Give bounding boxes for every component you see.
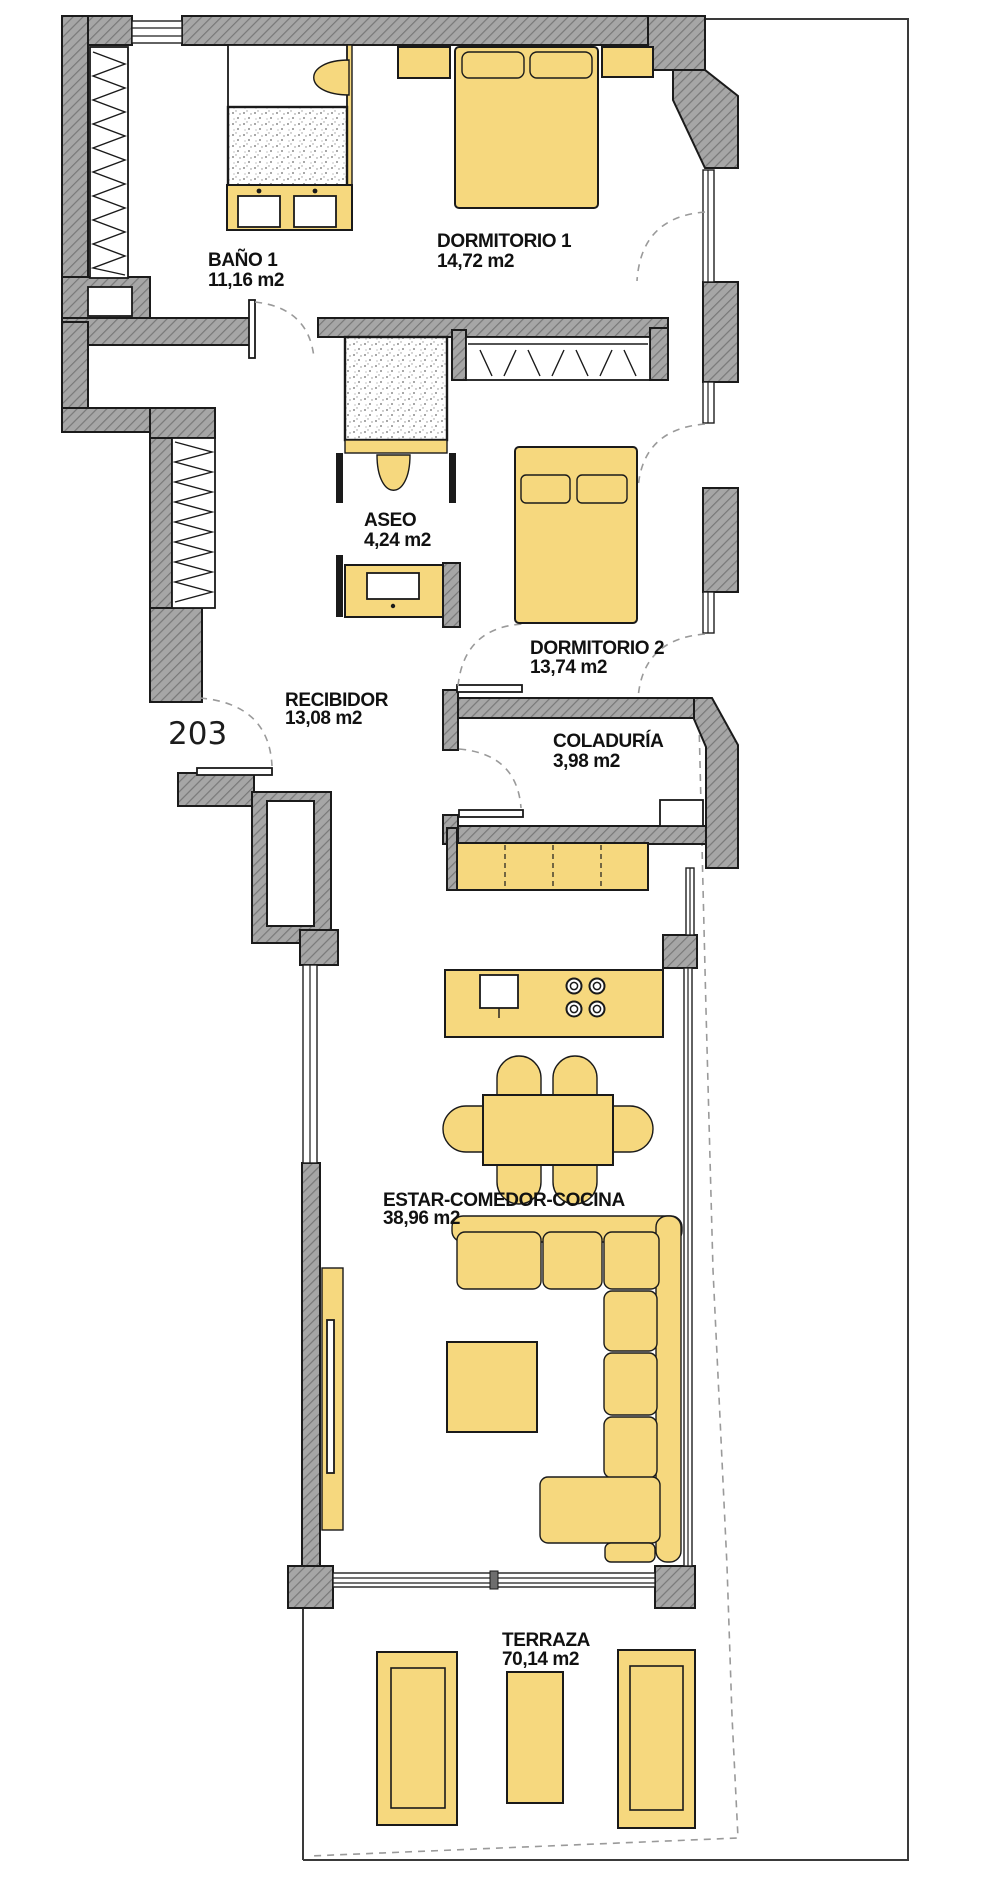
floor-plan-drawing: BAÑO 1 11,16 m2 DORMITORIO 1 14,72 m2 AS… xyxy=(0,0,1000,1894)
kitchen-island xyxy=(445,970,663,1037)
label-terraza-name: TERRAZA xyxy=(502,1630,591,1651)
wall-top-right-corner xyxy=(648,16,705,70)
wall-entry xyxy=(178,773,254,806)
label-dorm2-name: DORMITORIO 2 xyxy=(530,638,664,659)
sofa-seat-3 xyxy=(604,1291,657,1351)
label-recibidor-area: 13,08 m2 xyxy=(285,708,362,729)
chair-left xyxy=(443,1106,486,1152)
dorm2-entry-door-swing xyxy=(458,624,522,686)
wall-laundry-bottom xyxy=(452,826,706,844)
label-bano1-area: 11,16 m2 xyxy=(208,270,284,291)
label-dorm1-name: DORMITORIO 1 xyxy=(437,231,572,252)
island-sink xyxy=(480,975,518,1008)
sofa-seat-2 xyxy=(543,1232,602,1289)
tv-screen xyxy=(327,1320,334,1473)
shower2-sill xyxy=(345,440,447,453)
kitchen xyxy=(445,843,663,1037)
label-coladuria-area: 3,98 m2 xyxy=(553,751,620,772)
sofa-seat-1 xyxy=(457,1232,541,1289)
window-top xyxy=(132,21,182,43)
nightstand-left xyxy=(398,47,450,78)
unit-number-label: 203 xyxy=(168,716,227,752)
pillow-dorm1-left xyxy=(462,52,524,78)
wall-kitchen-stub xyxy=(447,828,457,890)
wall-right-dorm2 xyxy=(703,488,738,592)
toilet-aseo xyxy=(377,455,410,490)
dining-set xyxy=(443,1056,653,1204)
shaft-niche xyxy=(88,287,132,316)
pillow-dorm2-right xyxy=(577,475,627,503)
label-dorm2-area: 13,74 m2 xyxy=(530,657,607,678)
label-terraza-area: 70,14 m2 xyxy=(502,1649,579,1670)
wall-bath-bottom xyxy=(62,318,250,345)
wall-laundry-top xyxy=(443,698,698,718)
dorm2-entry-door-leaf xyxy=(457,685,522,692)
aseo-cabinet-knob xyxy=(391,604,395,608)
coffee-table xyxy=(447,1342,537,1432)
column-terrace-right xyxy=(655,1566,695,1608)
shower2-tray xyxy=(345,337,447,440)
shower1-tray xyxy=(228,107,347,187)
sofa-seat-5 xyxy=(604,1417,657,1478)
bathroom-1-fixtures xyxy=(227,45,352,230)
faucet-right xyxy=(313,189,318,194)
aseo-wall-left-lower xyxy=(336,555,343,617)
label-dorm1-area: 14,72 m2 xyxy=(437,251,514,272)
laundry-door-leaf xyxy=(459,810,523,817)
sink-left xyxy=(238,196,280,227)
label-bano1-name: BAÑO 1 xyxy=(208,249,278,271)
column-terrace-left xyxy=(288,1566,333,1608)
dorm2-upper-door-swing xyxy=(638,424,705,489)
chair-right xyxy=(610,1106,653,1152)
aseo-wall-left-upper xyxy=(336,453,343,503)
bed-dorm2 xyxy=(515,447,637,623)
lounger-2 xyxy=(507,1672,563,1803)
wall-entry-pillar xyxy=(150,608,202,702)
entry-door-leaf xyxy=(197,768,272,775)
aseo-fixtures xyxy=(336,337,456,617)
wall-divider-mid xyxy=(318,318,668,337)
nightstand-right xyxy=(602,47,653,77)
terrace-furniture xyxy=(377,1650,695,1828)
dormitorio-2-furniture xyxy=(515,447,637,623)
sofa-seat-corner xyxy=(604,1232,659,1289)
sink-right xyxy=(294,196,336,227)
aseo-wall-right-upper xyxy=(449,453,456,503)
chair-top-1 xyxy=(497,1056,541,1098)
dorm1-door-swing xyxy=(637,212,705,281)
label-aseo-name: ASEO xyxy=(364,510,416,531)
bath-door-swing xyxy=(255,302,314,358)
living-room-furniture xyxy=(322,1216,682,1562)
laundry-niche xyxy=(660,800,703,826)
sofa-chaise xyxy=(540,1477,660,1543)
floor-plan-page: BAÑO 1 11,16 m2 DORMITORIO 1 14,72 m2 AS… xyxy=(0,0,1000,1894)
pillar-wardrobe-left xyxy=(452,330,466,380)
wall-right-dorm1 xyxy=(703,282,738,382)
label-coladuria-name: COLADURÍA xyxy=(553,730,664,752)
wall-right-step xyxy=(673,70,738,168)
bath-door-leaf xyxy=(249,300,255,358)
wall-entry-shaft-ring xyxy=(252,792,331,943)
pillar-aseo-right xyxy=(443,563,460,627)
wall-living-left xyxy=(302,1163,320,1568)
sofa-seat-4 xyxy=(604,1353,657,1415)
laundry-door-swing xyxy=(459,749,521,808)
wall-top xyxy=(182,16,648,45)
label-estar-area: 38,96 m2 xyxy=(383,1208,460,1229)
sofa-cushion-end xyxy=(605,1543,655,1562)
pillow-dorm1-right xyxy=(530,52,592,78)
chair-top-2 xyxy=(553,1056,597,1098)
slider-junction xyxy=(490,1571,498,1589)
pillar-wardrobe-right xyxy=(650,328,668,380)
wall-closet-top xyxy=(150,408,215,438)
label-aseo-area: 4,24 m2 xyxy=(364,530,431,551)
pillar-laundry-upper xyxy=(443,690,458,750)
column-kitchen-right xyxy=(663,935,697,968)
column-living-left xyxy=(300,930,338,965)
pillow-dorm2-left xyxy=(521,475,570,503)
dining-table xyxy=(483,1095,613,1165)
aseo-cabinet-basin xyxy=(367,573,419,599)
wall-closet-left xyxy=(150,438,172,608)
faucet-left xyxy=(257,189,262,194)
